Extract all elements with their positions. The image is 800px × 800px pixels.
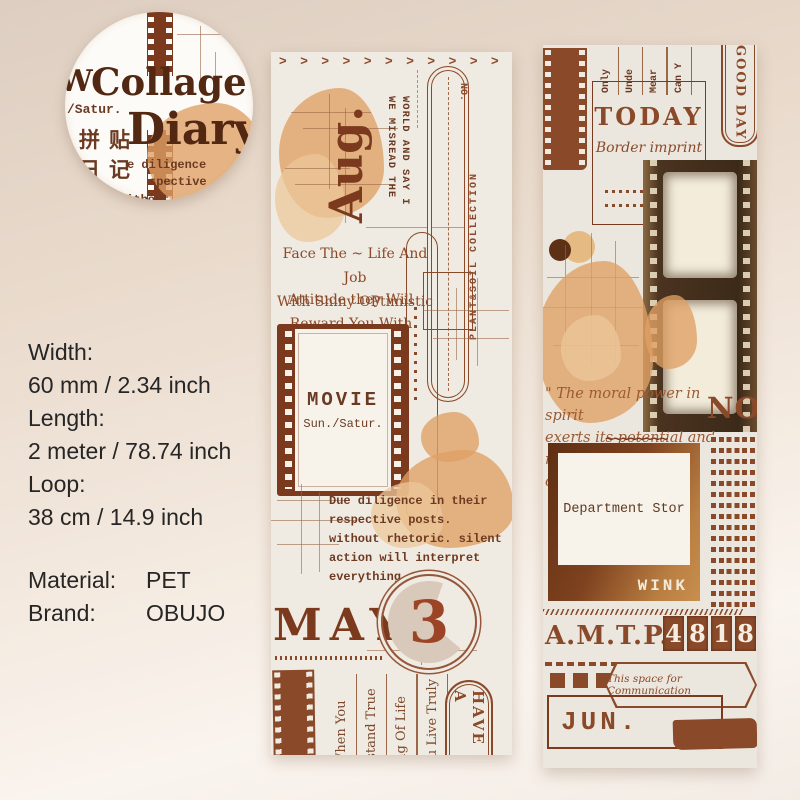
spec-length-label: Length: (28, 402, 231, 435)
vertical-caption-line1: WE MISREAD THE (385, 96, 397, 206)
no-label: NO. (428, 83, 468, 113)
grid-line (477, 278, 478, 366)
logo-satur-text: /Satur. (67, 102, 122, 117)
date-circle-stamp: 3 (381, 574, 477, 670)
vertical-phrase-list: When You rstand True ing Of Life ou Live… (327, 674, 448, 755)
spec-width-value: 60 mm / 2.34 inch (28, 369, 231, 402)
vertical-phrase: When You (327, 674, 357, 755)
watercolor-stain (645, 295, 697, 369)
spec-loop-value: 38 cm / 14.9 inch (28, 501, 231, 534)
have-a-pill-stamp: HAVE A (445, 680, 493, 755)
polaroid-photo-area: Department Stor (558, 453, 690, 565)
digit-stamp: 8 (687, 616, 708, 651)
paragraph-line: respective posts. (329, 511, 509, 530)
polaroid-caption: Department Stor (563, 502, 685, 517)
digit-stamp: 4 (663, 616, 684, 651)
spec-length-value: 2 meter / 78.74 inch (28, 435, 231, 468)
film-frame-window: MOVIE Sun./Satur. (298, 333, 388, 487)
grid-line (319, 492, 320, 572)
dashed-line (417, 70, 418, 128)
have-a-label: HAVE A (451, 690, 487, 755)
halftone-dot-grid (711, 435, 757, 607)
today-subtitle: Border imprint (593, 140, 705, 156)
logo-title-collage: Collage (91, 60, 247, 104)
quote-line: Face The ~ Life And Job (275, 242, 435, 290)
vertical-caption: WE MISREAD THE WORLD AND SAY I (385, 96, 411, 206)
spec-width-label: Width: (28, 336, 231, 369)
typewriter-paragraph: Due diligence in their respective posts.… (329, 492, 509, 587)
movie-title: MOVIE (307, 389, 379, 411)
month-stamp-jun: JUN. (561, 707, 639, 737)
grid-line (456, 288, 457, 360)
product-page: { "colors":{"accent_brown":"#7b3a1e","in… (0, 0, 800, 800)
grid-line (301, 484, 302, 574)
film-perforations (579, 50, 585, 168)
watercolor-stain (561, 315, 621, 381)
decor-line (177, 34, 237, 35)
washi-tape-strip-left: > > > > > > > > > > > > > > > Aug. WE MI… (271, 52, 512, 755)
grid-line (433, 338, 509, 339)
good-day-pill-stamp: GOOD DAY (721, 45, 757, 147)
vertical-phrase: rstand True (357, 674, 387, 755)
digit-stamp: 1 (711, 616, 732, 651)
movie-subtitle: Sun./Satur. (303, 417, 382, 431)
film-perforations (545, 50, 551, 168)
month-stamp-aug: Aug. (319, 88, 373, 223)
filmstrip-block (272, 670, 316, 755)
spacer (28, 534, 231, 564)
spec-brand-value: OBUJO (146, 597, 225, 630)
wink-label: WINK (638, 577, 688, 595)
square-dots (550, 673, 611, 688)
communication-banner-text: This space for Communication (607, 673, 755, 697)
spec-loop-label: Loop: (28, 468, 231, 501)
paragraph-line: without rhetoric. silent (329, 530, 509, 549)
logo-typewriter-3: without (119, 193, 169, 200)
quote-line: Attitude they Will (271, 288, 431, 312)
no-stamp: NO. (707, 391, 757, 425)
vertical-phrase: ing Of Life (387, 674, 417, 755)
spec-material-value: PET (146, 564, 191, 597)
watercolor-stain (421, 412, 479, 462)
logo-partial-letter: W (65, 64, 93, 99)
dashed-line (448, 77, 449, 391)
brand-logo-badge: W /Satur. Collage 拼贴 日记 Diary e diligenc… (65, 12, 253, 200)
washi-tape-strip-right: Only Unde Mear Can Y GOOD DAY TODAY Bord… (543, 45, 757, 768)
brown-dot (549, 239, 571, 261)
logo-typewriter-1: e diligence (127, 158, 206, 172)
logo-title-diary: Diary (127, 104, 253, 155)
today-title: TODAY (593, 102, 705, 131)
polaroid-photo-frame: Department Stor WINK (548, 443, 700, 601)
good-day-label: GOOD DAY (733, 45, 748, 141)
code-digit-stamps: 4 8 1 8 (663, 616, 756, 651)
film-frame-movie: MOVIE Sun./Satur. (277, 324, 409, 496)
spec-material-label: Material: (28, 564, 146, 597)
spec-brand-label: Brand: (28, 597, 146, 630)
logo-typewriter-2: spective (149, 175, 207, 189)
film-perforations (306, 672, 314, 755)
script-line: " The moral power in spirit (545, 383, 721, 427)
film-frame-blank (663, 172, 737, 278)
collection-label: PLANT&SOIL COLLECTION (469, 150, 480, 340)
code-prefix: A.M.T.P. (545, 621, 669, 651)
filmstrip-block (543, 48, 587, 170)
film-perforations (274, 672, 282, 755)
chevron-row: > > > > > > > > > > > > > > > (279, 53, 507, 68)
paragraph-line: Due diligence in their (329, 492, 509, 511)
product-specs: Width: 60 mm / 2.34 inch Length: 2 meter… (28, 336, 231, 630)
spec-brand-row: Brand: OBUJO (28, 597, 231, 630)
film-perforations (282, 329, 295, 491)
vertical-phrase: ou Live Truly (417, 674, 448, 755)
spec-material-row: Material: PET (28, 564, 231, 597)
digit-stamp: 8 (735, 616, 756, 651)
paragraph-line: action will interpret (329, 549, 509, 568)
hatched-divider (543, 609, 743, 615)
brush-swatch (673, 718, 757, 750)
date-number: 3 (383, 576, 475, 668)
dotted-line (414, 307, 417, 402)
grid-line (423, 310, 509, 311)
vertical-caption-line2: WORLD AND SAY I (399, 96, 411, 206)
hatched-underline (275, 656, 385, 660)
film-perforations (391, 329, 404, 491)
